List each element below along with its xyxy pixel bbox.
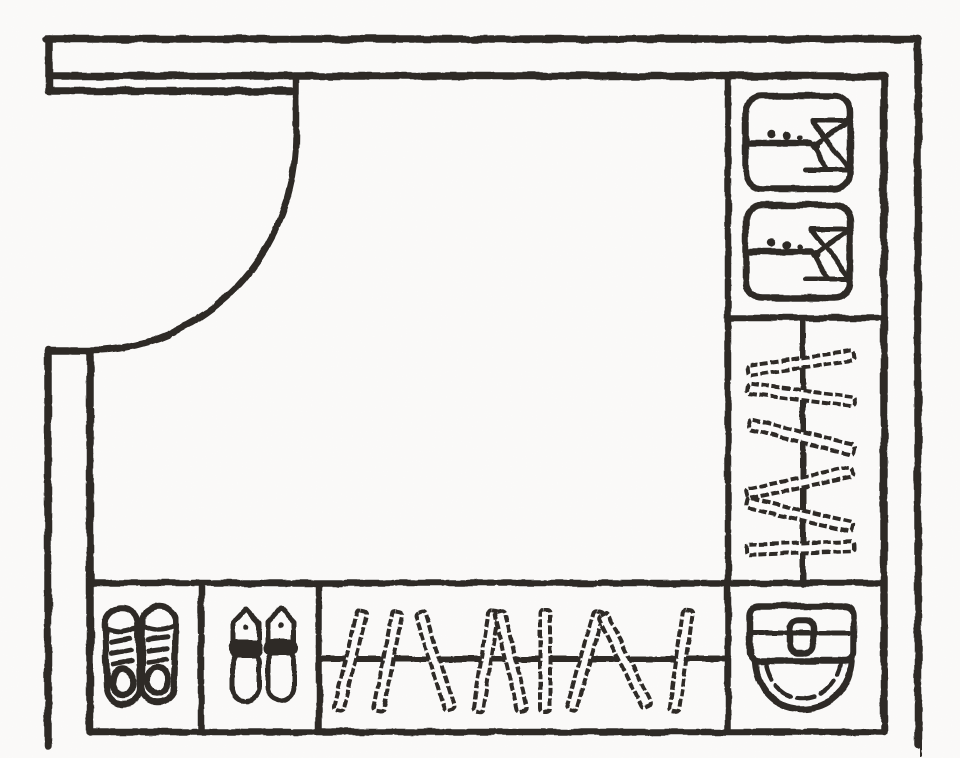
- hanger-bar: [746, 541, 854, 555]
- floor-plan-drawing: [0, 0, 960, 758]
- floor-plan-page: [0, 0, 960, 758]
- hanger-bar: [540, 610, 550, 712]
